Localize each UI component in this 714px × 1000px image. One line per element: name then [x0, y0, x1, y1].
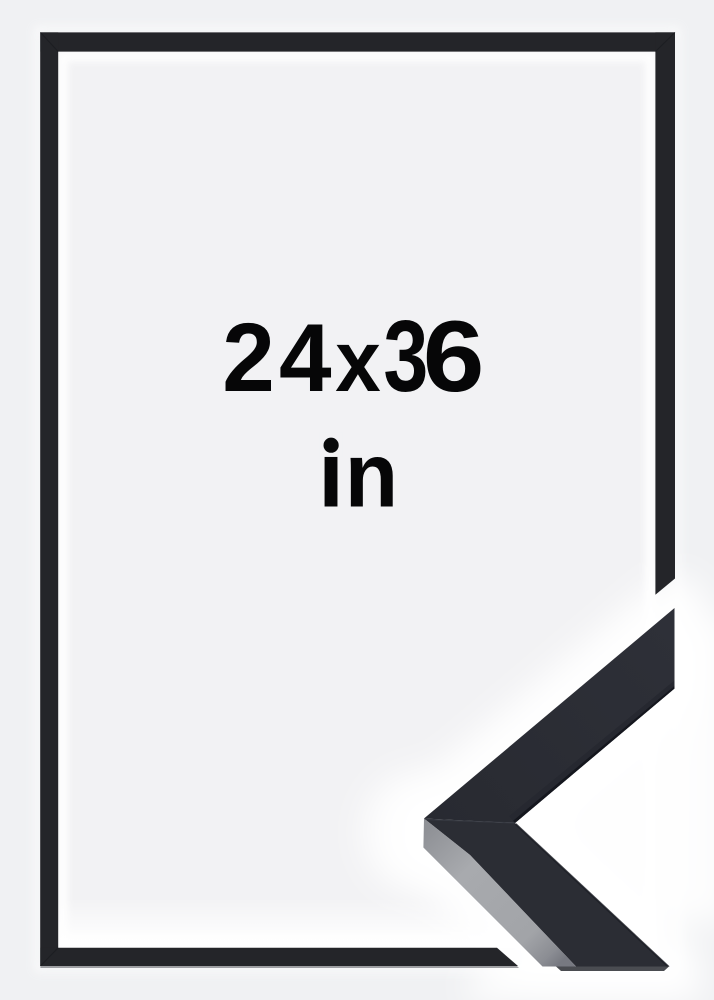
- svg-text:4: 4: [279, 305, 332, 412]
- svg-text:n: n: [345, 424, 398, 527]
- svg-text:x: x: [335, 311, 381, 409]
- svg-text:2: 2: [222, 304, 275, 413]
- svg-text:6: 6: [423, 301, 485, 413]
- svg-text:3: 3: [383, 300, 428, 413]
